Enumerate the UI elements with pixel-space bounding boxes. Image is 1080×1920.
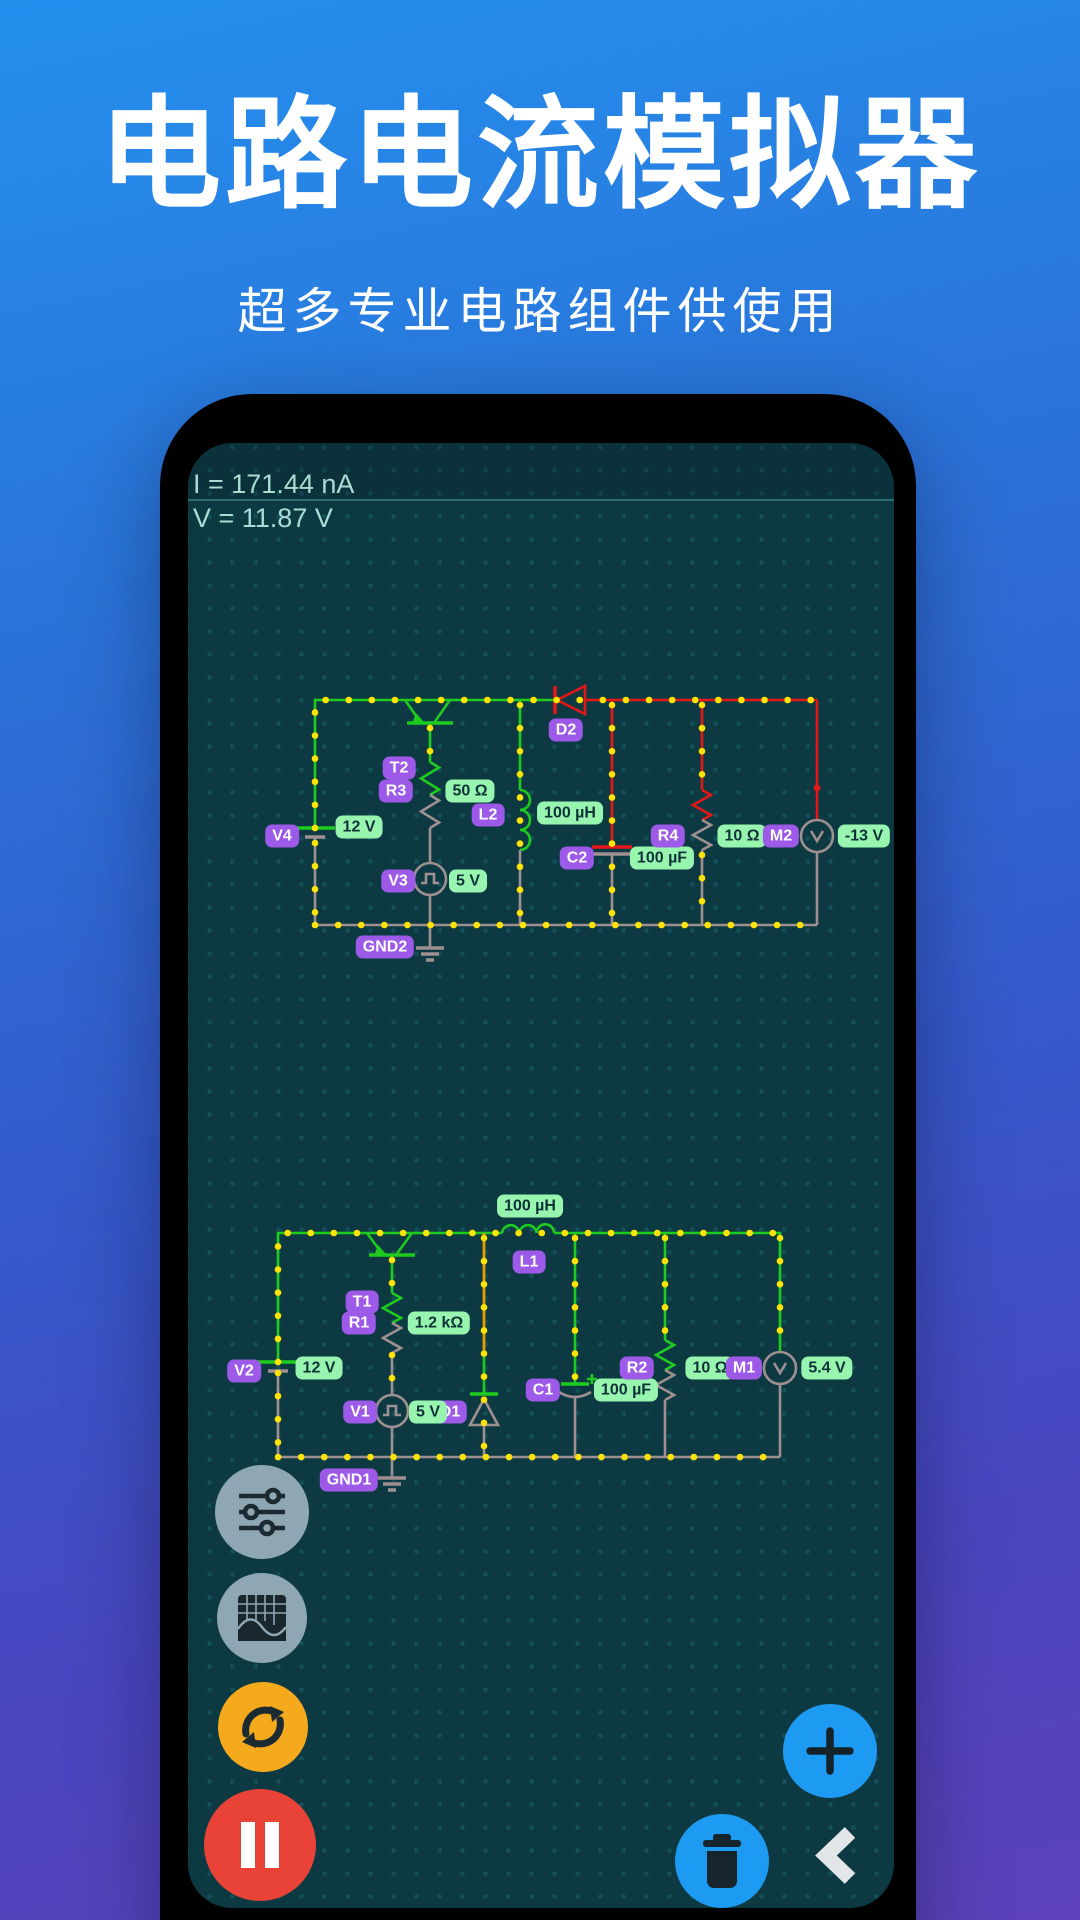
badge-v4-value[interactable]: 12 V [336, 816, 383, 839]
sliders-icon [215, 1465, 309, 1559]
promo-page: 电路电流模拟器 超多专业电路组件供使用 I = 171.44 nA V = 11… [0, 0, 1080, 1920]
badge-d2[interactable]: D2 [549, 719, 583, 742]
capacitor-c1[interactable] [559, 1233, 597, 1457]
back-button[interactable] [808, 1821, 868, 1896]
badge-v2-value[interactable]: 12 V [296, 1357, 343, 1380]
badge-v3[interactable]: V3 [381, 870, 415, 893]
voltmeter-m1[interactable] [764, 1352, 796, 1457]
inductor-l1[interactable] [502, 1224, 554, 1233]
page-title: 电路电流模拟器 [0, 88, 1080, 222]
badge-r3-value[interactable]: 50 Ω [445, 780, 494, 803]
badge-c2-value[interactable]: 100 µF [630, 847, 694, 870]
badge-l2-value[interactable]: 100 µH [537, 802, 603, 825]
source-v3[interactable] [414, 828, 446, 925]
badge-t1[interactable]: T1 [346, 1291, 379, 1314]
wire[interactable] [554, 1233, 780, 1352]
plus-icon [783, 1704, 877, 1798]
simulator-screen[interactable]: I = 171.44 nA V = 11.87 V [188, 443, 894, 1908]
resistor-r2[interactable] [656, 1233, 674, 1457]
resistor-r1[interactable] [383, 1293, 401, 1353]
resistor-r3[interactable] [421, 762, 439, 828]
badge-v3-value[interactable]: 5 V [449, 870, 487, 893]
badge-r4-value[interactable]: 10 Ω [717, 825, 766, 848]
badge-r2[interactable]: R2 [620, 1357, 654, 1380]
badge-m2[interactable]: M2 [763, 825, 799, 848]
badge-m1[interactable]: M1 [726, 1357, 762, 1380]
badge-l1[interactable]: L1 [513, 1251, 546, 1274]
badge-c2[interactable]: C2 [560, 847, 594, 870]
oscilloscope-fab[interactable] [217, 1573, 307, 1663]
delete-fab[interactable] [675, 1814, 769, 1908]
badge-r3[interactable]: R3 [379, 780, 413, 803]
badge-t2[interactable]: T2 [383, 757, 416, 780]
badge-l2[interactable]: L2 [472, 804, 505, 827]
resistor-r4[interactable] [693, 700, 711, 925]
badge-r1-value[interactable]: 1.2 kΩ [408, 1312, 470, 1335]
badge-r1[interactable]: R1 [342, 1312, 376, 1335]
source-v1[interactable] [376, 1353, 408, 1457]
badge-gnd1[interactable]: GND1 [320, 1469, 378, 1492]
restart-fab[interactable] [218, 1682, 308, 1772]
badge-r4[interactable]: R4 [651, 825, 685, 848]
badge-c1-value[interactable]: 100 µF [594, 1379, 658, 1402]
badge-v2[interactable]: V2 [227, 1360, 261, 1383]
ground-gnd1[interactable] [378, 1457, 406, 1490]
pause-fab[interactable] [204, 1789, 316, 1901]
badge-c1[interactable]: C1 [526, 1379, 560, 1402]
badge-m2-value[interactable]: -13 V [838, 825, 890, 848]
badge-gnd2[interactable]: GND2 [356, 936, 414, 959]
badge-v1-value[interactable]: 5 V [409, 1401, 447, 1424]
trash-icon [675, 1814, 769, 1908]
sync-arrows-icon [218, 1682, 308, 1772]
badge-v4[interactable]: V4 [265, 825, 299, 848]
ground-gnd2[interactable] [416, 925, 444, 960]
settings-fab[interactable] [215, 1465, 309, 1559]
add-component-fab[interactable] [783, 1704, 877, 1798]
waveform-grid-icon [217, 1573, 307, 1663]
badge-l1-value[interactable]: 100 µH [497, 1195, 563, 1218]
badge-m1-value[interactable]: 5.4 V [801, 1357, 852, 1380]
chevron-left-icon [808, 1821, 868, 1891]
pause-icon [204, 1789, 316, 1901]
phone-mockup: I = 171.44 nA V = 11.87 V [160, 394, 916, 1920]
page-subtitle: 超多专业电路组件供使用 [0, 272, 1080, 343]
voltmeter-m2[interactable] [801, 700, 833, 925]
badge-v1[interactable]: V1 [343, 1401, 377, 1424]
